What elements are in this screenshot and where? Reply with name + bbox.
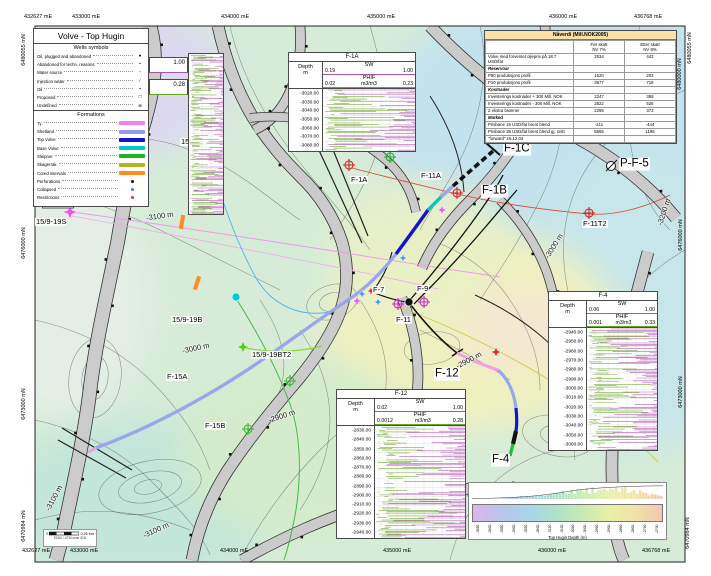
npv-value-after-tax — [625, 135, 676, 142]
well-label-f-11[interactable]: F-11 — [395, 316, 412, 324]
legend-well-symbol-row: Oil▪ — [34, 85, 148, 93]
npv-value-before-tax — [574, 135, 625, 142]
colorbar-tick: -3200 — [532, 522, 544, 535]
npv-value-after-tax: 359 — [625, 93, 676, 100]
npv-row: Volve med forventet oljepris på 18.7 USD… — [486, 53, 676, 65]
legend-formation-row: Skagerrak — [34, 161, 148, 169]
legend-formation-row: Perforations — [34, 177, 148, 185]
well-symbol-icon: • — [135, 62, 145, 67]
npv-header-col2: Etter skattNV 8% — [625, 41, 676, 54]
npv-row-label: Volve med forventet oljepris på 18.7 USD… — [486, 53, 574, 65]
legend-well-symbol-label: Proposed — [37, 95, 55, 100]
npv-table: Før skattNV 7%Etter skattNV 8%Volve med … — [485, 40, 676, 143]
log-curve-phif-range: 0.02m3/m30.23 — [323, 81, 415, 88]
log-track — [375, 426, 465, 538]
log-panel-f-12[interactable]: F-12DepthmSW0.021.00PHIF0.0012m3/m30.28-… — [336, 389, 466, 539]
colorbar-tick: -3350 — [496, 522, 508, 535]
sw-max-box: 1.00 — [149, 57, 188, 73]
colorbar-gradient — [472, 504, 663, 522]
legend-formation-label: Skagerrak — [37, 162, 57, 167]
legend-formation-label: Perforations — [37, 179, 60, 184]
log-depth-header: Depthm — [289, 62, 323, 88]
npv-value-before-tax — [574, 114, 625, 121]
npv-value-after-tax — [625, 114, 676, 121]
legend-formation-row: Sleipner — [34, 152, 148, 160]
formation-dot-icon — [131, 180, 134, 183]
npv-value-after-tax: 203 — [625, 72, 676, 79]
legend-title: Volve - Top Hugin — [34, 29, 148, 44]
log-track — [587, 328, 657, 450]
legend-formation-label: Restrictions — [37, 195, 59, 200]
legend-well-symbol-label: Water source — [37, 70, 62, 75]
log-panel-title: F-4 — [549, 292, 657, 301]
npv-value-before-tax: 2295 — [574, 107, 625, 114]
well-marker-15-9-19b[interactable] — [232, 293, 240, 301]
legend-formation-label: Ty — [37, 121, 42, 126]
npv-row-label: P90 produksjons profil — [486, 72, 574, 79]
npv-value-before-tax: -211 — [574, 121, 625, 128]
legend-well-symbol-row: Undefined⊚ — [34, 102, 148, 110]
npv-value-after-tax: 443 — [625, 53, 676, 65]
log-depth-ticks: -2830.00-2840.00-2850.00-2860.00-2870.00… — [337, 426, 375, 538]
legend-well-symbol-label: Undefined — [37, 103, 57, 108]
formation-dot-icon — [131, 188, 134, 191]
colorbar-tick: -3250 — [520, 522, 532, 535]
legend-well-symbol-row: Injection water∕ — [34, 77, 148, 85]
npv-value-before-tax: 2247 — [574, 93, 625, 100]
npv-row: P90 produksjons profil1520203 — [486, 72, 676, 79]
npv-row-label: Kostnader — [486, 86, 574, 93]
npv-value-before-tax: 5565 — [574, 128, 625, 135]
npv-row: 2 ekstra brønner2295373 — [486, 107, 676, 114]
legend-wells-symbols-title: Wells symbols — [34, 44, 148, 52]
npv-header-empty — [486, 41, 574, 54]
npv-row: Investerings kostnader + 300 Mill. NOK22… — [486, 93, 676, 100]
legend-well-symbol-row: Proposed□ — [34, 93, 148, 101]
legend-formation-row: Top Volve — [34, 136, 148, 144]
npv-row: Reservoar — [486, 65, 676, 72]
well-label-15-9-19b[interactable]: 15/9-19B — [171, 316, 203, 324]
legend-well-symbol-row: Abandoned for techn. reasons• — [34, 60, 148, 68]
legend-formation-row: Cored intervals — [34, 169, 148, 177]
npv-row: "forward" 15.12.04 — [486, 135, 676, 142]
log-curve-sw-range: 0.021.00 — [375, 405, 465, 412]
legend-panel[interactable]: Volve - Top Hugin Wells symbols Oil, plu… — [33, 28, 149, 207]
well-label-f-1c[interactable]: F-1C — [503, 143, 531, 156]
log-track — [323, 89, 415, 151]
colorbar-tick: -3400 — [484, 522, 496, 535]
formation-color-bar — [119, 121, 145, 125]
log-curve-phif-range: 0.0012m3/m30.28 — [375, 418, 465, 425]
well-symbol-icon: ∕ — [135, 79, 145, 84]
npv-value-before-tax: 3677 — [574, 79, 625, 86]
legend-well-symbol-list: Oil, plugged and abandoned●Abandoned for… — [34, 52, 148, 110]
npv-value-before-tax — [574, 86, 625, 93]
log-panel-f-1a[interactable]: F-1ADepthmSW0.191.00PHIF0.02m3/m30.23-30… — [288, 52, 416, 152]
legend-formation-row: Base Volve — [34, 144, 148, 152]
npv-row: Investerings kostnader - 300 Mill. NOK28… — [486, 100, 676, 107]
colorbar-tick: -3450 — [472, 522, 484, 535]
legend-well-symbol-row: Water source▫ — [34, 69, 148, 77]
well-symbol-icon: □ — [135, 95, 145, 100]
well-label-f-15b[interactable]: F-15B — [204, 422, 226, 430]
npv-value-after-tax: 373 — [625, 107, 676, 114]
npv-value-after-tax — [625, 86, 676, 93]
npv-value-after-tax: 1196 — [625, 128, 676, 135]
well-label-f-4[interactable]: F-4 — [491, 454, 510, 467]
log-curve-sw-range: 0.191.00 — [323, 68, 415, 75]
colorbar-panel[interactable]: -3450-3400-3350-3300-3250-3200-3150-3100… — [468, 482, 667, 540]
npv-row-label: 2 ekstra brønner — [486, 107, 574, 114]
npv-row-label: Reservoar — [486, 65, 574, 72]
scalebar-panel: 0 0,25 Km ED50 / UTM zone 31N — [43, 529, 97, 547]
legend-formation-row: Shetland — [34, 127, 148, 135]
well-label-f-9[interactable]: F-9 — [416, 285, 429, 293]
well-label-f-1a[interactable]: F-1A — [350, 176, 368, 184]
npv-value-after-tax: 526 — [625, 100, 676, 107]
well-label-f-7[interactable]: F-7 — [372, 286, 385, 294]
colorbar-tick: -2750 — [639, 522, 651, 535]
colorbar-tick: -2850 — [615, 522, 627, 535]
well-symbol-icon: ● — [135, 54, 145, 59]
npv-table-panel[interactable]: Nåverdi (Mill.NOK2005) Før skattNV 7%Ett… — [484, 30, 677, 144]
well-symbol-icon: ⊚ — [135, 104, 145, 109]
log-depth-ticks: -2940.00-2950.00-2960.00-2970.00-2980.00… — [549, 328, 587, 450]
formation-color-bar — [119, 163, 145, 167]
well-label-15-9-19s[interactable]: 15/9-19S — [35, 218, 67, 226]
colorbar-tick: -2900 — [603, 522, 615, 535]
log-depth-header: Depthm — [337, 399, 375, 425]
log-panel-title: F-12 — [337, 390, 465, 399]
colorbar-tick: -3150 — [544, 522, 556, 535]
colorbar-tick: -2950 — [591, 522, 603, 535]
legend-well-symbol-label: Oil — [37, 87, 42, 92]
npv-header-col1: Før skattNV 7% — [574, 41, 625, 54]
well-label-f-15a[interactable]: F-15A — [166, 373, 188, 381]
npv-header-row: Før skattNV 7%Etter skattNV 8% — [486, 41, 676, 54]
legend-formation-row: Restrictions — [34, 194, 148, 202]
npv-value-before-tax: 1520 — [574, 72, 625, 79]
formation-color-bar — [119, 130, 145, 134]
well-label-f-1b[interactable]: F-1B — [481, 185, 508, 198]
scalebar-zero: 0 — [46, 532, 48, 536]
log-curve-sw-range: 0.061.00 — [587, 307, 657, 314]
npv-row: P10 produksjons profil3677718 — [486, 79, 676, 86]
legend-well-symbol-label: Injection water — [37, 79, 65, 84]
legend-formation-label: Sleipner — [37, 154, 53, 159]
npv-row-label: Prisbane 35 USD/fat brent blend gj. snit… — [486, 128, 574, 135]
npv-row-label: P10 produksjons profil — [486, 79, 574, 86]
log-panel-f-4[interactable]: F-4DepthmSW0.061.00PHIF0.001m3/m30.33-29… — [548, 291, 658, 451]
npv-value-after-tax: 718 — [625, 79, 676, 86]
legend-formation-label: Base Volve — [37, 146, 59, 151]
legend-formation-label: Collapsed — [37, 187, 56, 192]
legend-formations-title: Formations — [34, 110, 148, 119]
colorbar-tick: -3050 — [568, 522, 580, 535]
formation-color-bar — [119, 146, 145, 150]
colorbar-tick: -3000 — [579, 522, 591, 535]
log-curve-phif-range: 0.001m3/m30.33 — [587, 320, 657, 327]
npv-row: Prisbane 35 USD/fat brent blend gj. snit… — [486, 128, 676, 135]
npv-row: Marked — [486, 114, 676, 121]
well-label-15-9-19bt2[interactable]: 15/9-19BT2 — [251, 351, 292, 359]
formation-color-bar — [119, 154, 145, 158]
log-depth-header: Depthm — [549, 301, 587, 327]
legend-well-symbol-label: Abandoned for techn. reasons — [37, 62, 95, 67]
colorbar-tick: -2800 — [627, 522, 639, 535]
npv-row-label: Investerings kostnader - 300 Mill. NOK — [486, 100, 574, 107]
npv-value-after-tax: -444 — [625, 121, 676, 128]
well-label-f-12[interactable]: F-12 — [434, 368, 460, 381]
colorbar-histogram — [472, 485, 663, 499]
map-window: 15/9-19S15/9-19A15/9-19B15/9-19BT2F-15AF… — [0, 0, 711, 576]
npv-value-after-tax — [625, 65, 676, 72]
npv-table-title: Nåverdi (Mill.NOK2005) — [485, 31, 676, 40]
colorbar-tick: -2700 — [651, 522, 663, 535]
legend-well-symbol-row: Oil, plugged and abandoned● — [34, 52, 148, 60]
well-label-f-11a[interactable]: F-11A — [420, 172, 442, 180]
well-symbol-icon: ▫ — [135, 70, 145, 75]
npv-value-before-tax — [574, 65, 625, 72]
formation-dot-icon — [131, 196, 134, 199]
scalebar-distance: 0,25 Km — [81, 532, 94, 536]
legend-formation-row: Collapsed — [34, 185, 148, 193]
well-log-strip[interactable] — [188, 53, 224, 215]
formation-color-bar — [119, 171, 145, 175]
legend-formation-row: Ty — [34, 119, 148, 127]
npv-row: Kostnader — [486, 86, 676, 93]
npv-row-label: "forward" 15.12.04 — [486, 135, 574, 142]
well-label-p-f-5[interactable]: P-F-5 — [619, 158, 650, 171]
legend-well-symbol-label: Oil, plugged and abandoned — [37, 54, 91, 59]
npv-row-label: Prisbane 15 USD/fat brent blend — [486, 121, 574, 128]
log-depth-ticks: -3020.00-3030.00-3040.00-3050.00-3060.00… — [289, 89, 323, 151]
npv-value-before-tax: 2822 — [574, 100, 625, 107]
well-label-f-11t2[interactable]: F-11T2 — [582, 220, 608, 228]
npv-row-label: Investerings kostnader + 300 Mill. NOK — [486, 93, 574, 100]
well-symbol-icon: ▪ — [135, 87, 145, 92]
scalebar-crs: ED50 / UTM zone 31N — [46, 536, 94, 540]
colorbar-ticks: -3450-3400-3350-3300-3250-3200-3150-3100… — [472, 522, 663, 535]
colorbar-label: Top Hugin Depth (m) — [472, 535, 663, 540]
colorbar-tick: -3100 — [556, 522, 568, 535]
formation-color-bar — [119, 138, 145, 142]
legend-formation-label: Cored intervals — [37, 171, 66, 176]
phif-max-box: 0.28 — [149, 79, 188, 95]
npv-value-before-tax: 2534 — [574, 53, 625, 65]
legend-formation-list: TyShetlandTop VolveBase VolveSleipnerSka… — [34, 119, 148, 202]
legend-formation-label: Top Volve — [37, 137, 56, 142]
well-marker-platform[interactable] — [405, 298, 413, 306]
colorbar-tick: -3300 — [508, 522, 520, 535]
npv-row-label: Marked — [486, 114, 574, 121]
npv-row: Prisbane 15 USD/fat brent blend-211-444 — [486, 121, 676, 128]
log-panel-title: F-1A — [289, 53, 415, 62]
legend-formation-label: Shetland — [37, 129, 54, 134]
